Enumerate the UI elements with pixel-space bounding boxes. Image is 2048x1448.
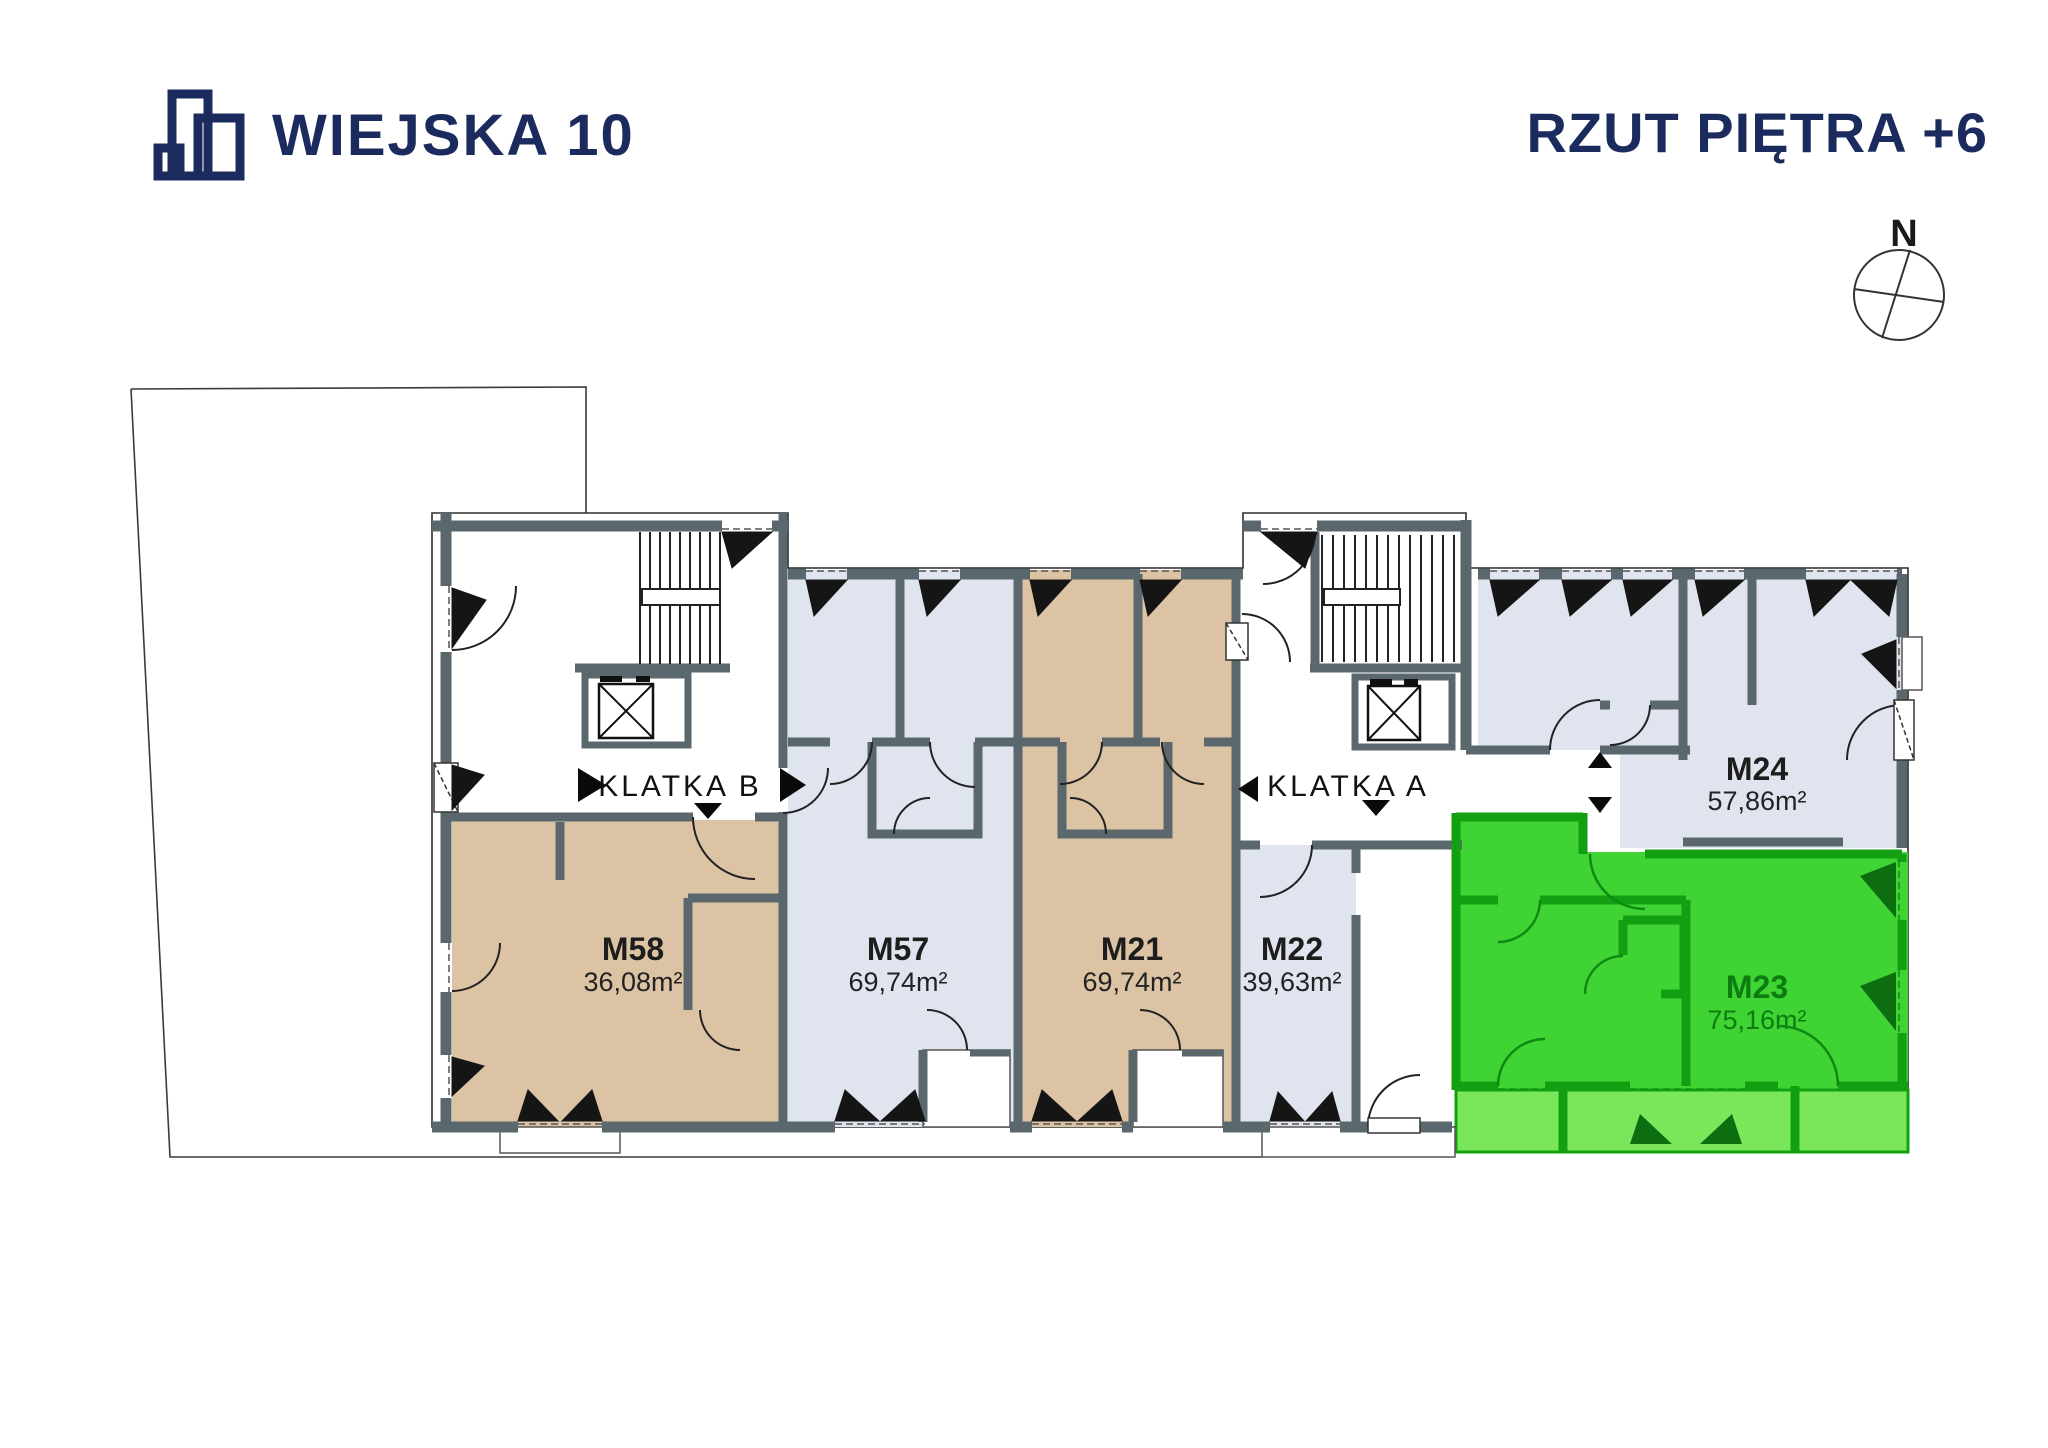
loggia-m21 <box>1133 1050 1223 1127</box>
apartment-m23-size: 75,16m² <box>1707 1005 1806 1035</box>
floorplan-page: WIEJSKA 10 RZUT PIĘTRA +6 N M58 36,08m² … <box>0 0 2048 1448</box>
apartment-m24-id: M24 <box>1726 751 1788 787</box>
compass-crossline <box>1854 289 1944 302</box>
apartment-m22[interactable]: M22 39,63m² <box>1236 845 1356 1127</box>
staircase-b-label: KLATKA B <box>598 770 762 803</box>
elevator-klatka-a-icon <box>1355 677 1452 747</box>
apartment-m21[interactable]: M21 69,74m² <box>1018 570 1236 1127</box>
compass-rose: N <box>1854 213 1944 340</box>
apartment-m24-size: 57,86m² <box>1707 786 1806 816</box>
apartment-m57-size: 69,74m² <box>848 967 947 997</box>
window-bay-right <box>1902 637 1922 690</box>
apartment-m21-area[interactable] <box>1018 570 1236 1127</box>
apartment-m22-id: M22 <box>1261 931 1323 967</box>
loggia-m57 <box>923 1050 1010 1127</box>
apartment-m58[interactable]: M58 36,08m² <box>452 820 783 1127</box>
apartment-m58-id: M58 <box>602 931 664 967</box>
compass-north-label: N <box>1890 213 1917 255</box>
apartment-m21-size: 69,74m² <box>1082 967 1181 997</box>
apartment-m57-id: M57 <box>867 931 929 967</box>
apartment-m23-id: M23 <box>1726 969 1788 1005</box>
floorplan-canvas: N M58 36,08m² M57 69,74m² M21 69,74m² M2… <box>0 0 2048 1448</box>
apartment-m58-size: 36,08m² <box>583 967 682 997</box>
apartment-m22-size: 39,63m² <box>1242 967 1341 997</box>
elevator-klatka-b-icon <box>585 675 688 745</box>
staircase-a-label: KLATKA A <box>1267 770 1429 803</box>
apartment-m23-balcony <box>1456 1090 1908 1152</box>
apartment-m21-id: M21 <box>1101 931 1163 967</box>
